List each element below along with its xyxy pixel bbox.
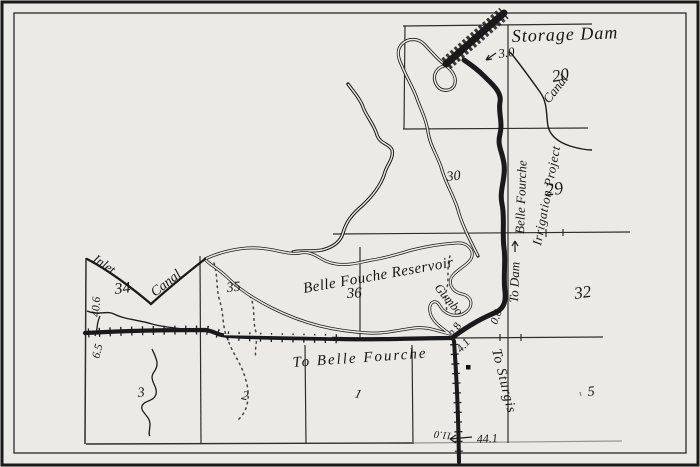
section-29: 29	[544, 178, 565, 200]
canal-west-label: Canal	[148, 267, 184, 300]
building-marker	[466, 365, 471, 370]
section-20: 20	[550, 64, 571, 86]
distance-11-0: 11.0	[433, 428, 453, 441]
canal-name-line1: Belle Fourche	[512, 160, 530, 234]
north-creek	[293, 84, 392, 252]
road-to-sturgis	[454, 341, 459, 462]
storage-dam-label: Storage Dam	[511, 22, 618, 46]
section-32: 32	[572, 282, 593, 303]
section-1: 1	[353, 385, 363, 401]
section-3: 3	[136, 385, 145, 401]
distance-44-1: 44.1	[476, 431, 498, 446]
distance-40-6: 40.6	[90, 296, 103, 317]
map-labels: Storage Dam Belle Fouche Reservoir To Be…	[89, 22, 618, 415]
map-sheet: Storage Dam Belle Fouche Reservoir To Be…	[0, 0, 700, 467]
section-2: 2	[240, 387, 250, 403]
inner-border	[14, 13, 686, 453]
section-36: 36	[345, 285, 362, 302]
storage-dam-structure	[446, 13, 504, 64]
river-arm-to-dam	[398, 40, 478, 257]
inlet-label: Inlet	[89, 250, 118, 277]
section-35: 35	[225, 280, 241, 296]
to-sturgis-label: To Sturgis	[488, 347, 519, 415]
to-dam-label: To Dam	[506, 262, 522, 304]
distance-3-0: 3.0	[496, 44, 516, 61]
irrigation-map: Storage Dam Belle Fouche Reservoir To Be…	[0, 0, 700, 467]
section-30: 30	[445, 169, 461, 185]
to-belle-fourche-label: To Belle Fourche	[292, 346, 428, 371]
mileage-figures: 3.0 0.6 2.8 4.1 40.6 6.5 44.1 11.0	[90, 44, 516, 446]
section-5: 5	[587, 384, 595, 400]
section-34: 34	[113, 279, 132, 298]
distance-6-5: 6.5	[90, 343, 105, 360]
road-to-dam	[452, 60, 505, 338]
distance-0-6: 0.6	[489, 308, 505, 326]
